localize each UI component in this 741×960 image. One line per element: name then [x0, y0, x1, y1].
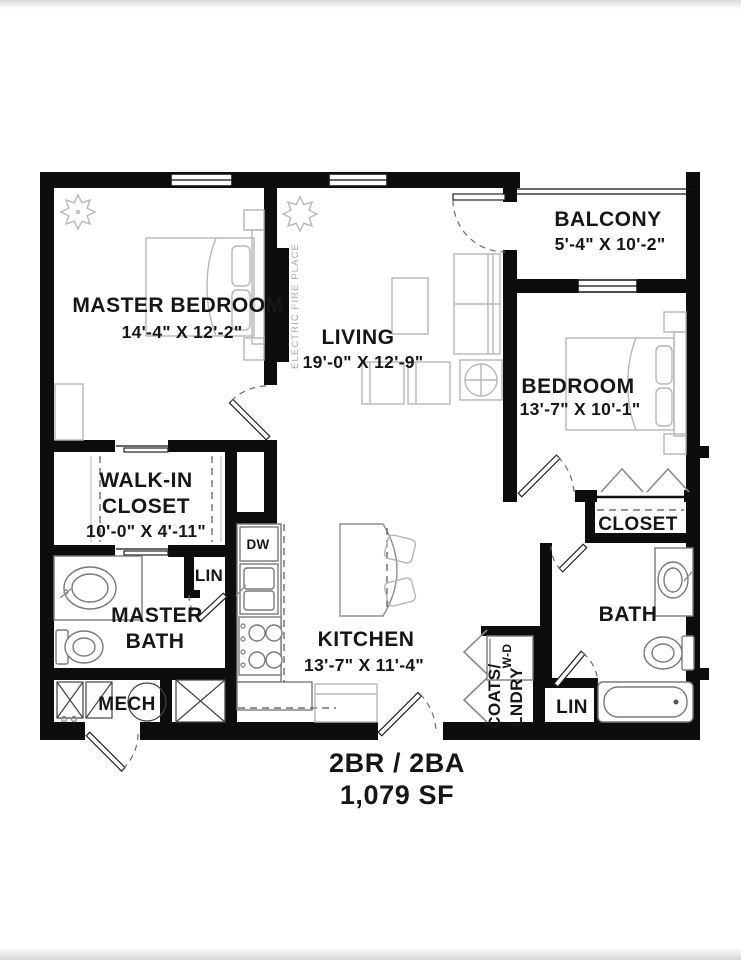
balcony-bottom-wall	[517, 279, 578, 293]
bifold-door	[464, 678, 487, 722]
plant-icon	[61, 195, 95, 229]
wall-mb-bottom	[168, 440, 277, 452]
sliding-door-leaf	[124, 448, 168, 452]
master-bedroom-door-arc	[231, 386, 268, 401]
bath-door-arc	[551, 546, 561, 570]
balcony-door-arc	[453, 200, 505, 252]
label-walkin-1: WALK-IN	[99, 469, 192, 492]
bifold-door	[647, 469, 689, 492]
windows	[171, 174, 637, 292]
wall-hall-stub	[264, 440, 277, 524]
kitchen-fixtures	[236, 524, 416, 722]
dims-kitchen: 13'-7" X 11'-4"	[304, 655, 424, 675]
burner	[249, 625, 265, 641]
bath-fixtures	[598, 548, 694, 722]
wall-coats-right	[533, 626, 545, 722]
sliding-door-leaf	[124, 551, 168, 555]
dims-master-bedroom: 14'-4" X 12'-2"	[122, 322, 243, 342]
wall-corner	[503, 490, 517, 502]
unit-area: 1,079 SF	[340, 780, 454, 810]
label-master-bedroom: MASTER BEDROOM	[72, 294, 283, 317]
label-linen-master: LIN	[195, 566, 223, 585]
mech-door-arc	[123, 732, 138, 769]
label-bedroom-closet: CLOSET	[598, 514, 677, 535]
nightstand	[244, 338, 264, 360]
unit-type: 2BR / 2BA	[329, 748, 465, 778]
dims-balcony: 5'-4" X 10'-2"	[555, 234, 666, 254]
entry-door-leaf	[378, 693, 421, 736]
mech-door-leaf	[86, 732, 125, 771]
tub-drain	[674, 700, 679, 705]
page-edge-shadow-bottom	[0, 947, 741, 960]
floor-plan-page: MASTER BEDROOM 14'-4" X 12'-2" LIVING 19…	[0, 0, 741, 960]
wall-closet-bottom	[40, 545, 115, 557]
plant-icon	[283, 197, 317, 231]
wall-kitchen-left	[225, 440, 237, 740]
label-master-bath-1: MASTER	[111, 604, 203, 627]
title-block: 2BR / 2BA 1,079 SF	[329, 748, 465, 810]
wall-lin-top	[540, 678, 598, 688]
pillow	[232, 246, 250, 286]
label-washer-dryer: W-D	[500, 644, 514, 669]
label-dishwasher: DW	[246, 537, 269, 552]
dims-bedroom: 13'-7" X 10'-1"	[520, 399, 641, 419]
label-fireplace: ELECTRIC FIRE PLACE	[290, 243, 301, 369]
wall-left	[40, 172, 54, 740]
nightstand	[664, 434, 686, 454]
nightstand	[664, 312, 686, 332]
label-kitchen: KITCHEN	[318, 628, 415, 651]
toilet-tank	[682, 636, 694, 670]
label-balcony: BALCONY	[554, 208, 661, 231]
wall-bottom-seg	[40, 722, 85, 740]
label-master-bath-2: BATH	[126, 630, 185, 653]
wall-nub	[700, 446, 709, 458]
wall-mech-top	[40, 668, 238, 680]
wall-bedroom-left	[503, 252, 517, 492]
wall-bottom-seg	[443, 722, 700, 740]
stool	[384, 577, 417, 607]
wall-kitchen-top	[225, 512, 277, 524]
headboard	[674, 332, 686, 436]
dresser	[55, 384, 83, 440]
stool	[384, 534, 417, 564]
dims-living: 19'-0" X 12'-9"	[303, 352, 424, 372]
pillow	[656, 388, 672, 426]
burner	[249, 652, 265, 668]
label-bath: BATH	[599, 603, 658, 626]
bifold-door	[601, 469, 643, 492]
entry-bench	[315, 684, 377, 722]
floor-plan-drawing: MASTER BEDROOM 14'-4" X 12'-2" LIVING 19…	[0, 0, 741, 960]
balcony-door-leaf	[453, 194, 505, 200]
master-bedroom-door-leaf	[229, 399, 269, 439]
wall-bottom-seg	[140, 722, 378, 740]
bifold-door	[464, 630, 487, 674]
counter-return	[237, 682, 312, 710]
label-coats-1: COATS/	[485, 663, 504, 728]
console-table	[392, 278, 428, 334]
label-living: LIVING	[321, 326, 394, 349]
burner	[266, 625, 282, 641]
plant-center	[77, 211, 80, 214]
entry-door-arc	[420, 694, 436, 732]
label-linen-hall: LIN	[556, 697, 588, 718]
wall-mb-living	[264, 188, 277, 385]
label-walkin-2: CLOSET	[102, 495, 190, 518]
wall-lin-master-lip	[184, 590, 200, 598]
bedroom-door-leaf	[518, 455, 560, 497]
wall-mb-bottom	[40, 440, 115, 452]
pillow	[656, 346, 672, 384]
label-coats-2: LNDRY	[507, 667, 526, 727]
balcony-bottom-wall	[637, 279, 686, 293]
page-edge-shadow-top	[0, 0, 741, 9]
living-furniture	[283, 197, 502, 404]
nightstand	[244, 210, 264, 230]
label-bedroom: BEDROOM	[521, 375, 634, 398]
bath-door-leaf	[559, 544, 587, 572]
wall-nub	[700, 668, 709, 680]
label-mech: MECH	[98, 694, 156, 715]
dims-walkin: 10'-0" X 4'-11"	[86, 521, 206, 541]
burner	[266, 652, 282, 668]
bedroom-door-arc	[558, 457, 574, 493]
wall-top	[40, 172, 520, 188]
